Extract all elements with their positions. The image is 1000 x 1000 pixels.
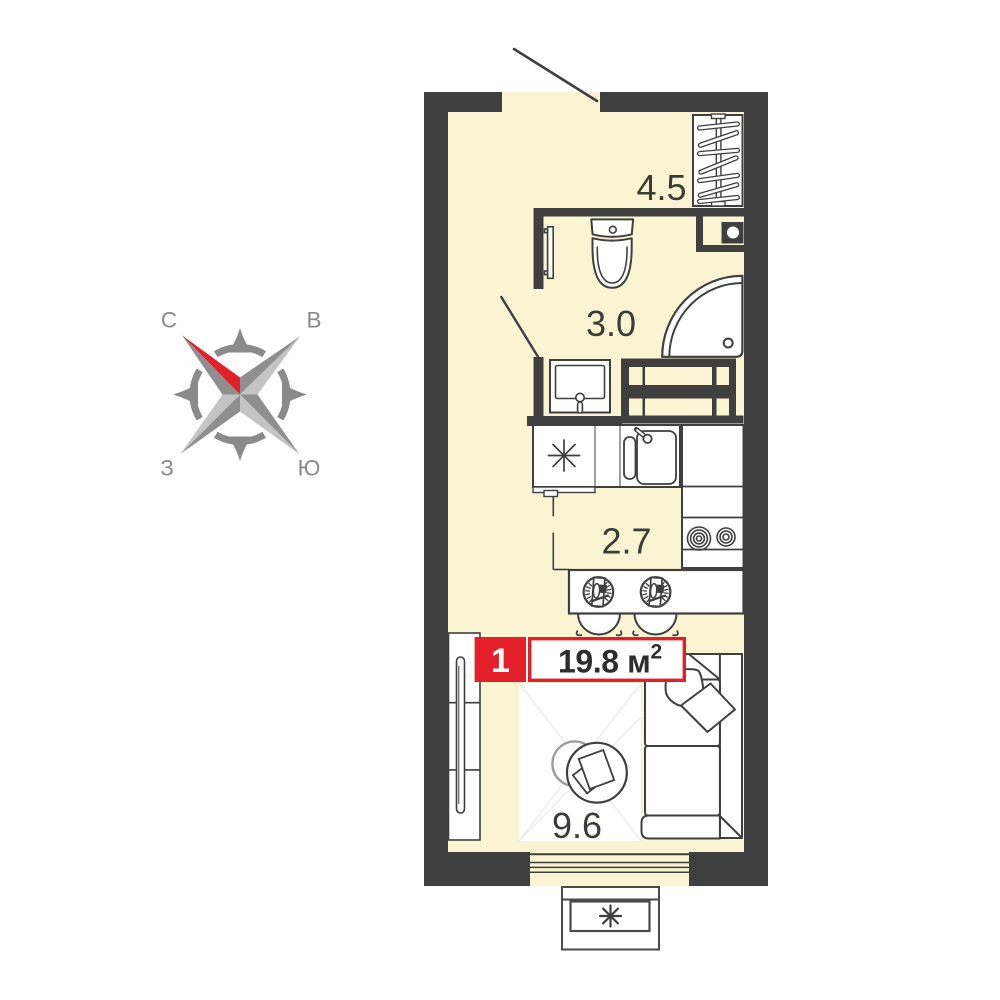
svg-text:В: В: [306, 308, 321, 333]
svg-text:4.5: 4.5: [636, 167, 686, 208]
svg-text:3.0: 3.0: [586, 303, 636, 344]
svg-text:9.6: 9.6: [552, 805, 602, 846]
svg-text:С: С: [161, 308, 177, 333]
svg-text:2.7: 2.7: [601, 521, 651, 562]
svg-text:З: З: [160, 456, 174, 481]
svg-text:Ю: Ю: [298, 456, 321, 481]
svg-text:1: 1: [491, 642, 510, 680]
svg-text:19.8 м2: 19.8 м2: [558, 641, 662, 680]
